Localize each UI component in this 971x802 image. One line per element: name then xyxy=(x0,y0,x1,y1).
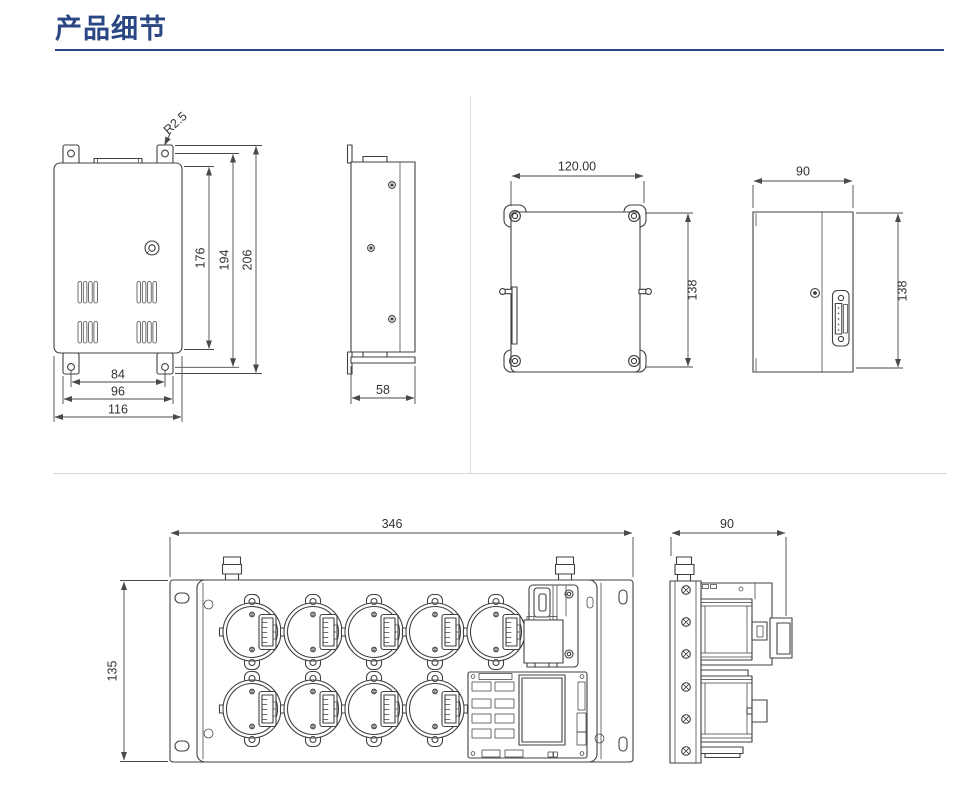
dim-label-width-overall: 116 xyxy=(108,403,128,417)
enclosure-front-view: 176 194 206 84 96 116 R2.5 xyxy=(30,95,280,440)
lower-module-side xyxy=(701,670,767,758)
module-side-view: 90 138 xyxy=(730,140,930,410)
page-title: 产品细节 xyxy=(55,7,167,46)
dim-label-right-height: 138 xyxy=(896,281,910,302)
front-panel-bar xyxy=(670,581,701,763)
rack-panel-side-view: 90 xyxy=(655,495,905,790)
module-rear-body xyxy=(500,205,652,372)
antenna-connector xyxy=(556,557,575,581)
dim-label-width-holes: 84 xyxy=(111,368,125,382)
enclosure-body xyxy=(54,145,182,374)
dim-label-rear-height: 138 xyxy=(686,280,700,301)
horizontal-divider xyxy=(53,473,947,474)
enclosure-side-body xyxy=(348,145,416,374)
dim-label-height-holes: 194 xyxy=(218,250,232,271)
module-side-body xyxy=(753,212,853,372)
dim-label-height-inner: 176 xyxy=(194,248,208,269)
antenna-connector xyxy=(223,557,242,581)
dim-label-rear-width: 120.00 xyxy=(558,160,596,174)
dim-label-corner-radius: R2.5 xyxy=(161,109,190,137)
upper-module-side xyxy=(701,583,793,665)
dim-label-height-overall: 206 xyxy=(241,250,255,271)
dsub-connector xyxy=(833,291,850,347)
side-view-dimensions: 58 xyxy=(351,366,415,404)
vertical-divider xyxy=(470,96,471,473)
module-rear-view: 120.00 138 xyxy=(480,140,715,410)
dim-label-panel-width: 346 xyxy=(382,517,403,531)
product-detail-section: 产品细节 xyxy=(0,0,971,802)
antenna-connector-side xyxy=(675,557,694,581)
enclosure-side-view: 58 xyxy=(335,95,450,415)
dim-label-depth: 58 xyxy=(376,383,390,397)
bottom-right-subpanel xyxy=(468,672,587,758)
dim-label-width-tabs: 96 xyxy=(111,385,125,399)
top-right-module xyxy=(524,585,578,667)
title-underline xyxy=(55,49,944,51)
dim-label-panel-height: 135 xyxy=(106,661,120,682)
rack-panel-front-view: 346 135 xyxy=(95,495,650,790)
dim-label-panel-depth: 90 xyxy=(720,517,734,531)
dim-label-right-depth: 90 xyxy=(796,165,810,179)
